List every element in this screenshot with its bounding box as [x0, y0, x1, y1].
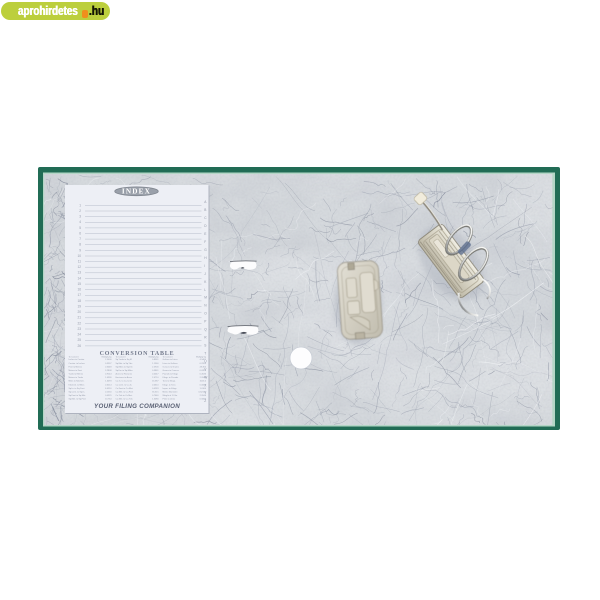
svg-text:4.5460: 4.5460 [200, 359, 207, 361]
svg-text:Gallons to Litres: Gallons to Litres [163, 358, 178, 361]
svg-text:Sq.In. to Sq.Cent.: Sq.In. to Sq.Cent. [69, 387, 86, 390]
svg-text:Litres to Gallons: Litres to Gallons [163, 362, 178, 365]
svg-text:16: 16 [77, 288, 81, 292]
svg-text:8: 8 [79, 243, 81, 247]
svg-text:0.6214: 0.6214 [105, 384, 112, 386]
svg-text:0.62137: 0.62137 [198, 391, 206, 393]
svg-text:1: 1 [79, 203, 81, 207]
svg-text:Sq.Miles to Sq.Km: Sq.Miles to Sq.Km [116, 365, 133, 368]
svg-text:10.764: 10.764 [105, 399, 112, 401]
svg-text:Centim. to Inches: Centim. to Inches [69, 362, 85, 365]
svg-text:Cu.Cent. to Cu.In.: Cu.Cent. to Cu.In. [116, 383, 133, 386]
svg-text:Hectares to Acres: Hectares to Acres [116, 376, 132, 379]
svg-text:0.7646: 0.7646 [152, 395, 159, 397]
svg-text:Feet to Metres: Feet to Metres [69, 365, 82, 368]
svg-text:12: 12 [77, 265, 81, 269]
svg-text:5: 5 [79, 226, 81, 230]
svg-text:2.5900: 2.5900 [152, 366, 159, 368]
svg-text:Acres to Hectares: Acres to Hectares [116, 373, 133, 376]
svg-text:10: 10 [77, 254, 81, 258]
svg-text:Multiply by: Multiply by [102, 356, 113, 359]
svg-text:S: S [204, 344, 206, 348]
svg-text:Multiply by: Multiply by [196, 356, 207, 359]
svg-text:9: 9 [79, 248, 81, 252]
svg-text:25: 25 [77, 338, 81, 342]
svg-text:Cu.Met. to Cu.Feet: Cu.Met. to Cu.Feet [116, 390, 134, 393]
svg-text:1.6093: 1.6093 [105, 381, 112, 383]
svg-text:24: 24 [77, 333, 81, 337]
svg-text:2.5400: 2.5400 [105, 359, 112, 361]
svg-text:Weight of 1 Kilo.: Weight of 1 Kilo. [163, 394, 179, 397]
svg-text:13: 13 [77, 271, 81, 275]
svg-text:Inches to Centim.: Inches to Centim. [69, 358, 86, 361]
svg-text:Kilometr. to Miles: Kilometr. to Miles [69, 383, 85, 386]
svg-text:Sq.Km to Sq.Miles: Sq.Km to Sq.Miles [116, 369, 133, 372]
svg-text:3: 3 [79, 215, 81, 219]
svg-text:YOUR FILING COMPANION: YOUR FILING COMPANION [94, 403, 180, 410]
svg-text:Sq.Met. to Sq.Feet: Sq.Met. to Sq.Feet [69, 398, 87, 401]
svg-text:20: 20 [77, 310, 81, 314]
svg-text:INDEX: INDEX [122, 188, 151, 196]
svg-text:0.3861: 0.3861 [152, 370, 159, 372]
svg-text:16.387: 16.387 [152, 381, 159, 383]
svg-text:23: 23 [77, 327, 81, 331]
svg-text:6.4516: 6.4516 [105, 388, 112, 390]
svg-text:28.350: 28.350 [200, 366, 207, 368]
svg-text:Cu.In. to Cu.Cent.: Cu.In. to Cu.Cent. [116, 380, 133, 383]
svg-text:17: 17 [77, 293, 81, 297]
svg-text:0.4536: 0.4536 [200, 374, 207, 376]
svg-text:Metric Kilometre: Metric Kilometre [163, 390, 179, 393]
svg-text:Cu.Feet to Cu.Met.: Cu.Feet to Cu.Met. [116, 387, 134, 390]
svg-text:0.4047: 0.4047 [152, 374, 159, 376]
svg-text:0.0353: 0.0353 [200, 370, 207, 372]
svg-text:E: E [204, 232, 206, 236]
svg-text:1.0936: 1.0936 [105, 377, 112, 379]
svg-text:To Convert: To Convert [116, 356, 126, 359]
svg-text:Sq.Yards to Sq.M.: Sq.Yards to Sq.M. [116, 358, 133, 361]
svg-text:Cu.Yds to Cu.Met.: Cu.Yds to Cu.Met. [116, 394, 133, 397]
svg-text:2.4710: 2.4710 [152, 377, 159, 379]
svg-text:L: L [204, 288, 206, 292]
svg-text:M: M [204, 296, 207, 300]
svg-text:0.0610: 0.0610 [152, 384, 159, 386]
svg-text:Ounces to Grams: Ounces to Grams [163, 365, 179, 368]
svg-text:Yards to Metres: Yards to Metres [69, 373, 84, 376]
svg-text:2.2046: 2.2046 [200, 377, 207, 379]
svg-text:0.3937: 0.3937 [105, 363, 112, 365]
svg-text:To Convert: To Convert [69, 356, 79, 359]
svg-text:18: 18 [77, 299, 81, 303]
svg-text:4: 4 [79, 220, 81, 224]
svg-text:22: 22 [77, 321, 81, 325]
svg-text:To Convert: To Convert [163, 356, 173, 359]
svg-text:6: 6 [79, 231, 81, 235]
svg-text:Pints to Litres: Pints to Litres [163, 398, 176, 401]
svg-text:T: T [204, 351, 206, 355]
svg-text:35.315: 35.315 [152, 391, 159, 393]
svg-text:P: P [204, 320, 206, 324]
svg-text:Kilogr. to Pounds: Kilogr. to Pounds [163, 376, 179, 379]
svg-text:0.0929: 0.0929 [105, 395, 112, 397]
svg-text:3.2808: 3.2808 [105, 370, 112, 372]
svg-text:0.2200: 0.2200 [200, 363, 207, 365]
svg-text:2.2046: 2.2046 [200, 395, 207, 397]
svg-text:0.5683: 0.5683 [200, 399, 207, 401]
svg-text:Metres to Yards: Metres to Yards [69, 376, 83, 379]
svg-text:Pounds to Kilogr.: Pounds to Kilogr. [163, 373, 179, 376]
svg-text:21: 21 [77, 316, 81, 320]
svg-text:0.0283: 0.0283 [152, 388, 159, 390]
svg-text:0.1550: 0.1550 [105, 391, 112, 393]
svg-text:Grams to Ounces: Grams to Ounces [163, 369, 179, 372]
svg-text:1.0160: 1.0160 [200, 388, 207, 390]
svg-text:1.1960: 1.1960 [152, 363, 159, 365]
svg-text:0.9144: 0.9144 [105, 374, 112, 376]
svg-text:0.3048: 0.3048 [105, 366, 112, 368]
svg-text:Tons to Kilogr.: Tons to Kilogr. [163, 380, 176, 383]
svg-text:Sq.Cent. to Sq.In.: Sq.Cent. to Sq.In. [69, 390, 86, 393]
svg-text:26: 26 [77, 344, 81, 348]
svg-text:B: B [204, 208, 206, 212]
svg-text:Imper. to Kilogr.: Imper. to Kilogr. [163, 387, 178, 390]
svg-text:11: 11 [78, 260, 82, 264]
svg-text:15: 15 [77, 282, 81, 286]
svg-text:Miles to Kilometr.: Miles to Kilometr. [69, 380, 85, 383]
svg-text:I: I [204, 264, 205, 268]
svg-text:14: 14 [77, 276, 81, 280]
svg-text:7: 7 [79, 237, 81, 241]
svg-text:1.3080: 1.3080 [152, 399, 159, 401]
svg-text:Cu.Met. to Cu.Yds: Cu.Met. to Cu.Yds [116, 398, 133, 401]
svg-text:19: 19 [77, 305, 81, 309]
svg-text:Sq.Met. to Sq.Yds: Sq.Met. to Sq.Yds [116, 362, 133, 365]
svg-text:1016.0: 1016.0 [200, 381, 207, 383]
svg-text:F: F [204, 240, 206, 244]
svg-text:Kilogr. to Tons: Kilogr. to Tons [163, 383, 176, 386]
svg-text:2: 2 [79, 209, 81, 213]
svg-text:Sq.Feet to Sq.Met.: Sq.Feet to Sq.Met. [69, 394, 87, 397]
svg-text:Multiply by: Multiply by [149, 356, 160, 359]
svg-text:0.0009: 0.0009 [200, 384, 207, 386]
svg-text:0.8361: 0.8361 [152, 359, 159, 361]
svg-text:Metres to Feet: Metres to Feet [69, 369, 83, 372]
